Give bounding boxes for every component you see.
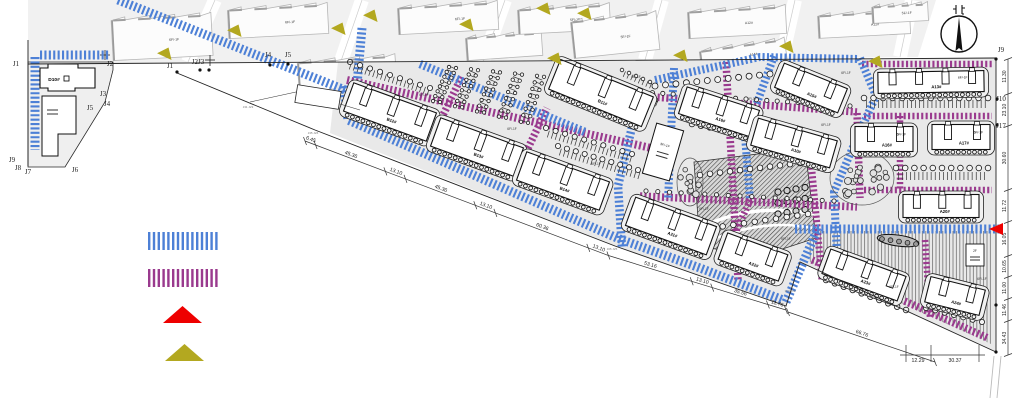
svg-text:J8: J8 xyxy=(15,164,22,172)
svg-text:D10#: D10# xyxy=(48,77,60,83)
svg-text:11.30: 11.30 xyxy=(1002,70,1008,82)
svg-text:J31 J23: J31 J23 xyxy=(243,105,254,109)
svg-text:J7: J7 xyxy=(25,168,32,176)
svg-text:6F/-1F: 6F/-1F xyxy=(747,97,756,101)
svg-text:J4: J4 xyxy=(104,100,111,108)
svg-text:6F/-1F: 6F/-1F xyxy=(699,207,708,211)
svg-text:11.72: 11.72 xyxy=(1002,200,1008,212)
svg-text:J10: J10 xyxy=(996,95,1006,103)
svg-text:6F/-1F: 6F/-1F xyxy=(781,237,790,241)
svg-text:6F/-1F: 6F/-1F xyxy=(631,75,640,79)
svg-text:J4: J4 xyxy=(265,51,272,59)
svg-text:6F/-1F: 6F/-1F xyxy=(507,127,516,131)
svg-text:30.60: 30.60 xyxy=(1002,152,1008,165)
svg-text:J35 J26: J35 J26 xyxy=(308,131,319,135)
svg-text:6F/-1F: 6F/-1F xyxy=(841,71,850,75)
svg-text:J1: J1 xyxy=(13,60,20,68)
svg-text:6F/-1F: 6F/-1F xyxy=(974,131,983,135)
svg-text:6F/-1F: 6F/-1F xyxy=(419,93,428,97)
svg-text:A20#: A20# xyxy=(940,209,951,214)
svg-text:11.46: 11.46 xyxy=(1002,304,1008,316)
svg-text:J9: J9 xyxy=(9,156,16,164)
svg-text:A16#: A16# xyxy=(882,143,893,148)
svg-text:J05 J25: J05 J25 xyxy=(607,247,618,251)
svg-text:A13#: A13# xyxy=(931,84,942,89)
svg-text:A17#: A17# xyxy=(959,141,970,146)
svg-text:J2: J2 xyxy=(107,60,114,68)
svg-text:320 319: 320 319 xyxy=(785,289,796,293)
svg-text:A12#: A12# xyxy=(745,21,753,25)
svg-text:6F/-1F: 6F/-1F xyxy=(958,75,968,79)
svg-text:6F/-1F: 6F/-1F xyxy=(285,20,295,25)
svg-text:J5: J5 xyxy=(87,104,94,112)
svg-text:5F/-1F: 5F/-1F xyxy=(902,11,912,16)
svg-text:12.29: 12.29 xyxy=(912,358,925,364)
svg-text:6F/-1F: 6F/-1F xyxy=(169,37,179,42)
svg-text:37: 37 xyxy=(786,311,790,315)
svg-text:6F/-1F: 6F/-1F xyxy=(591,162,600,166)
svg-text:34.43: 34.43 xyxy=(1002,332,1008,345)
svg-text:J2J3: J2J3 xyxy=(192,58,205,66)
svg-text:30.37: 30.37 xyxy=(949,358,962,364)
svg-text:J5: J5 xyxy=(285,51,292,59)
svg-text:J9: J9 xyxy=(998,46,1005,54)
svg-text:6F/-1F: 6F/-1F xyxy=(889,285,898,289)
svg-text:23.10: 23.10 xyxy=(1002,104,1008,117)
svg-text:6F/-1F: 6F/-1F xyxy=(821,123,830,127)
svg-text:2F: 2F xyxy=(973,249,977,253)
svg-text:J6: J6 xyxy=(72,166,79,174)
svg-text:J1: J1 xyxy=(167,62,174,70)
svg-text:6F/-1F: 6F/-1F xyxy=(977,277,986,281)
svg-text:J17: J17 xyxy=(996,122,1006,130)
svg-text:10.65: 10.65 xyxy=(1002,260,1008,273)
svg-text:6F/-1F: 6F/-1F xyxy=(897,133,906,137)
svg-text:6F/-1F: 6F/-1F xyxy=(455,17,465,22)
svg-text:11.00: 11.00 xyxy=(1002,282,1008,294)
svg-text:J3: J3 xyxy=(100,90,107,98)
